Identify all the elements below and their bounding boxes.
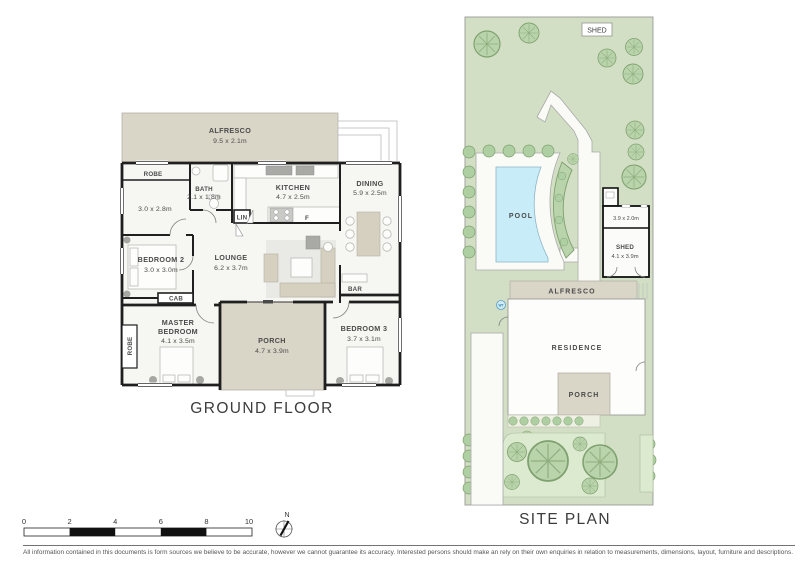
shrub-icon — [560, 238, 568, 246]
porch-dims: 4.7 x 3.9m — [255, 348, 289, 355]
tree-icon — [626, 121, 644, 139]
bedroom3-label: BEDROOM 3 — [341, 324, 388, 333]
site-plan: WT SHED POOL 3.9 x 2.0m SHED 4.1 x 3.9m … — [463, 17, 656, 528]
scale-tick-2: 2 — [68, 517, 72, 526]
dining-dims: 5.9 x 2.5m — [353, 190, 387, 197]
plan-canvas: ALFRESCO 9.5 x 2.1m ROBE 3.0 x 2.8m BATH… — [0, 0, 800, 566]
armchair — [264, 254, 278, 282]
floorplan-page: ALFRESCO 9.5 x 2.1m ROBE 3.0 x 2.8m BATH… — [0, 0, 800, 566]
tree-icon — [628, 144, 644, 160]
robe-top-label: ROBE — [144, 171, 163, 178]
bath-dims: 2.1 x 1.8m — [187, 194, 221, 201]
shrub-icon — [553, 417, 561, 425]
shrub-icon — [542, 417, 550, 425]
shower-icon — [213, 165, 228, 181]
dining-table — [346, 212, 391, 256]
shrub-icon — [463, 246, 475, 258]
alfresco-label: ALFRESCO — [209, 126, 251, 135]
compass-icon: N — [275, 512, 293, 538]
shrub-icon — [503, 145, 515, 157]
kitchen-dims: 4.7 x 2.5m — [276, 194, 310, 201]
lounge-label: LOUNGE — [215, 253, 248, 262]
porch-area — [220, 302, 325, 390]
tree-icon — [474, 31, 500, 57]
kitchen-sink — [266, 166, 292, 175]
shrub-icon — [523, 145, 535, 157]
bar-label: BAR — [348, 286, 362, 293]
porch-step — [286, 390, 314, 396]
site-plan-title: SITE PLAN — [519, 511, 611, 528]
lounge-dims: 6.2 x 3.7m — [214, 265, 248, 272]
porch-label: PORCH — [258, 336, 286, 345]
porch-slider — [263, 300, 273, 304]
scale-tick-6: 6 — [159, 517, 163, 526]
shrub-icon — [463, 166, 475, 178]
basin-icon — [192, 167, 200, 175]
site-porch-label: PORCH — [569, 392, 600, 399]
alfresco-dims: 9.5 x 2.1m — [213, 138, 247, 145]
tree-icon — [623, 64, 643, 84]
shrub-icon — [463, 186, 475, 198]
driveway — [471, 333, 503, 505]
lin-label: LIN — [237, 215, 248, 222]
master-dims: 4.1 x 3.5m — [161, 338, 195, 345]
tree-icon — [582, 478, 598, 494]
bedroom3-dims: 3.7 x 3.1m — [347, 336, 381, 343]
cab-label: CAB — [169, 296, 183, 303]
tree-icon — [519, 23, 539, 43]
shrub-icon — [555, 216, 563, 224]
water-tank-label: WT — [499, 304, 504, 308]
master-robe-label: ROBE — [127, 337, 134, 356]
dining-label: DINING — [356, 179, 383, 188]
coffee-table — [291, 258, 312, 277]
tree-icon — [583, 445, 617, 479]
shrub-icon — [463, 146, 475, 158]
shrub-icon — [520, 417, 528, 425]
tree-icon — [626, 39, 643, 56]
scale-tick-10: 10 — [245, 517, 253, 526]
tree-icon — [508, 443, 527, 462]
kitchen-label: KITCHEN — [276, 183, 310, 192]
master-label-1: MASTER — [162, 318, 195, 327]
bath-label: BATH — [195, 186, 213, 193]
shrub-icon — [564, 417, 572, 425]
shrub-icon — [463, 206, 475, 218]
shrub-icon — [463, 226, 475, 238]
bedroom2-label: BEDROOM 2 — [138, 255, 185, 264]
fridge-label: F — [305, 215, 309, 222]
shrub-icon — [483, 145, 495, 157]
alfresco-steps — [338, 121, 397, 162]
tree-icon — [598, 49, 616, 67]
study-dims: 3.0 x 2.8m — [138, 206, 172, 213]
garden-shed-label: SHED — [587, 28, 606, 35]
scale-tick-8: 8 — [204, 517, 208, 526]
tv-unit — [306, 236, 320, 249]
ground-floor-plan: ALFRESCO 9.5 x 2.1m ROBE 3.0 x 2.8m BATH… — [120, 113, 403, 417]
tree-icon — [568, 154, 579, 165]
ground-floor-title: GROUND FLOOR — [190, 400, 333, 417]
shrub-icon — [555, 194, 563, 202]
footer-disclaimer: All information contained in this docume… — [23, 549, 793, 556]
site-residence-label: RESIDENCE — [552, 345, 603, 352]
store-dims: 3.9 x 2.0m — [613, 216, 639, 222]
tree-icon — [505, 475, 520, 490]
pool-label: POOL — [509, 213, 533, 220]
site-shed-label: SHED — [616, 244, 634, 251]
site-alfresco-label: ALFRESCO — [548, 289, 595, 296]
site-shed-dims: 4.1 x 3.9m — [611, 254, 638, 260]
scale-tick-0: 0 — [22, 517, 26, 526]
master-label-2: BEDROOM — [158, 327, 198, 336]
tree-icon — [528, 441, 568, 481]
shrub-icon — [542, 145, 554, 157]
scale-bar: 0 2 4 6 8 10 — [22, 517, 253, 536]
shrub-icon — [509, 417, 517, 425]
bedroom2-dims: 3.0 x 3.0m — [144, 267, 178, 274]
bar-counter — [342, 274, 367, 282]
tree-icon — [573, 437, 587, 451]
stove-icon — [270, 208, 293, 222]
water-tank: WT — [497, 301, 506, 310]
compass-north-label: N — [284, 512, 289, 519]
scale-tick-4: 4 — [113, 517, 117, 526]
shrub-icon — [558, 172, 566, 180]
side-table — [324, 243, 333, 252]
tree-icon — [622, 165, 646, 189]
shrub-icon — [575, 417, 583, 425]
shrub-icon — [531, 417, 539, 425]
